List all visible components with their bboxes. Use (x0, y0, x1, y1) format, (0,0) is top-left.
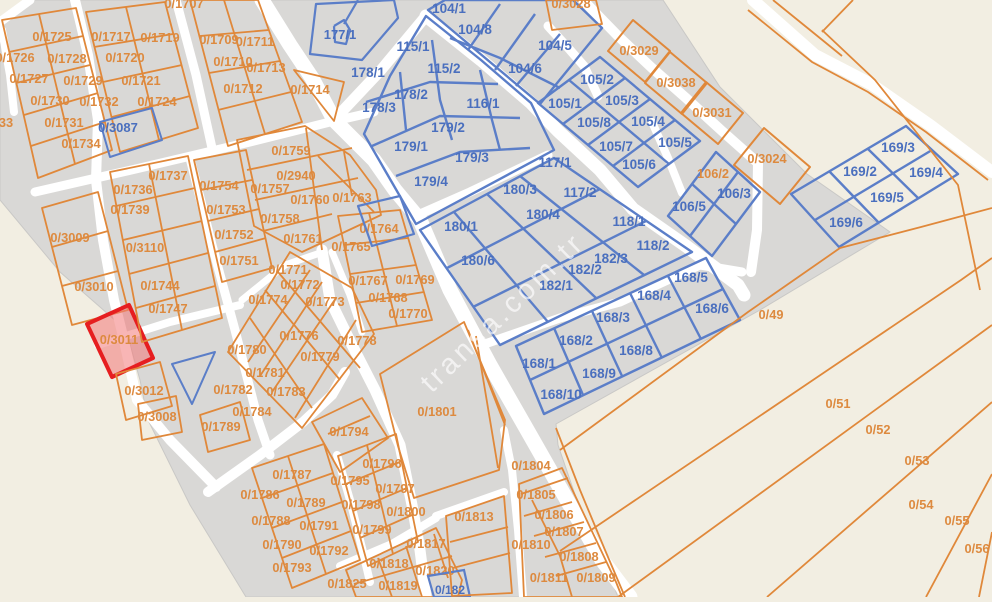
svg-text:0/1787: 0/1787 (272, 467, 311, 482)
svg-text:0/1754: 0/1754 (199, 178, 239, 193)
svg-text:0/1806: 0/1806 (534, 507, 573, 522)
svg-text:0/1813: 0/1813 (454, 509, 493, 524)
svg-text:169/6: 169/6 (829, 215, 863, 230)
svg-text:0/1791: 0/1791 (299, 518, 338, 533)
svg-text:177/1: 177/1 (324, 27, 357, 42)
svg-text:106/3: 106/3 (717, 186, 751, 201)
svg-text:168/3: 168/3 (596, 310, 630, 325)
svg-text:0/1719: 0/1719 (140, 30, 179, 45)
svg-text:0/1811: 0/1811 (530, 570, 568, 585)
svg-text:0/1761: 0/1761 (283, 231, 322, 246)
svg-text:0/1819: 0/1819 (378, 578, 417, 593)
svg-text:0/56: 0/56 (965, 541, 990, 556)
svg-text:0/3009: 0/3009 (50, 230, 89, 245)
svg-text:0/1765: 0/1765 (331, 239, 370, 254)
svg-text:0/1800: 0/1800 (386, 504, 425, 519)
svg-text:0/3087: 0/3087 (98, 120, 138, 135)
svg-text:33: 33 (0, 115, 13, 130)
svg-text:0/1767: 0/1767 (348, 273, 387, 288)
svg-text:0/1725: 0/1725 (32, 29, 71, 44)
svg-text:0/1728: 0/1728 (47, 51, 86, 66)
svg-text:0/53: 0/53 (905, 453, 930, 468)
svg-text:118/1: 118/1 (612, 214, 646, 229)
svg-text:180/3: 180/3 (503, 182, 537, 197)
svg-text:168/9: 168/9 (582, 366, 616, 381)
svg-text:0/1751: 0/1751 (219, 253, 258, 268)
svg-text:0/1789: 0/1789 (201, 419, 240, 434)
svg-text:0/3028: 0/3028 (551, 0, 590, 11)
svg-text:117/2: 117/2 (563, 185, 596, 200)
svg-text:169/4: 169/4 (909, 165, 943, 180)
svg-text:0/49: 0/49 (759, 307, 784, 322)
svg-text:0/1770: 0/1770 (388, 306, 427, 321)
svg-text:0/1804: 0/1804 (511, 458, 551, 473)
svg-text:0/1713: 0/1713 (246, 60, 285, 75)
svg-text:0/3029: 0/3029 (619, 43, 658, 58)
svg-text:0/1781: 0/1781 (245, 365, 284, 380)
svg-text:0/1801: 0/1801 (417, 404, 456, 419)
svg-text:117/1: 117/1 (538, 155, 572, 170)
svg-text:0/1792: 0/1792 (309, 543, 348, 558)
svg-text:0/1717: 0/1717 (91, 29, 130, 44)
svg-text:0/1732: 0/1732 (79, 94, 118, 109)
svg-text:0/1825: 0/1825 (327, 576, 366, 591)
svg-text:0/1714: 0/1714 (290, 82, 330, 97)
svg-text:0/1752: 0/1752 (214, 227, 253, 242)
svg-text:0/1727: 0/1727 (9, 71, 48, 86)
svg-text:0/1731: 0/1731 (44, 115, 83, 130)
svg-text:0/1794: 0/1794 (329, 424, 369, 439)
svg-text:0/1818: 0/1818 (369, 556, 408, 571)
svg-text:0/1779: 0/1779 (300, 349, 339, 364)
svg-text:118/2: 118/2 (636, 238, 669, 253)
svg-text:0/1730: 0/1730 (30, 93, 69, 108)
svg-text:169/2: 169/2 (843, 164, 877, 179)
svg-text:0/1809: 0/1809 (576, 570, 615, 585)
svg-text:168/10: 168/10 (540, 387, 581, 402)
svg-text:169/3: 169/3 (881, 140, 915, 155)
svg-text:178/2: 178/2 (394, 87, 428, 102)
svg-text:105/6: 105/6 (622, 157, 656, 172)
svg-text:168/6: 168/6 (695, 301, 729, 316)
svg-text:0/3008: 0/3008 (137, 409, 176, 424)
svg-text:0/1788: 0/1788 (251, 513, 290, 528)
svg-text:0/1744: 0/1744 (140, 278, 180, 293)
svg-text:0/1712: 0/1712 (223, 81, 262, 96)
svg-text:0/1805: 0/1805 (516, 487, 555, 502)
svg-text:0/1786: 0/1786 (240, 487, 279, 502)
svg-text:0/1795: 0/1795 (330, 473, 369, 488)
svg-text:0/1721: 0/1721 (121, 73, 160, 88)
svg-text:105/1: 105/1 (548, 96, 582, 111)
svg-text:179/4: 179/4 (414, 174, 448, 189)
svg-text:104/5: 104/5 (538, 38, 572, 53)
svg-text:168/8: 168/8 (619, 343, 653, 358)
svg-text:0/1709: 0/1709 (199, 32, 238, 47)
svg-text:168/1: 168/1 (522, 356, 556, 371)
svg-text:0/1726: 0/1726 (0, 50, 35, 65)
svg-text:104/6: 104/6 (508, 61, 542, 76)
svg-text:105/8: 105/8 (577, 115, 611, 130)
svg-text:0/1768: 0/1768 (368, 290, 407, 305)
svg-text:179/1: 179/1 (394, 139, 428, 154)
svg-text:0/3024: 0/3024 (747, 151, 787, 166)
svg-text:0/1753: 0/1753 (206, 202, 245, 217)
svg-text:104/8: 104/8 (458, 22, 492, 37)
svg-text:179/3: 179/3 (455, 150, 489, 165)
svg-text:0/3110: 0/3110 (126, 240, 164, 255)
svg-text:0/1771: 0/1771 (268, 262, 307, 277)
svg-text:0/1769: 0/1769 (395, 272, 434, 287)
svg-text:0/1817: 0/1817 (406, 536, 445, 551)
svg-text:0/1711: 0/1711 (236, 34, 274, 49)
svg-text:106/2: 106/2 (697, 166, 729, 181)
svg-text:179/2: 179/2 (431, 120, 465, 135)
svg-text:116/1: 116/1 (466, 96, 500, 111)
svg-text:0/1778: 0/1778 (337, 333, 376, 348)
svg-text:0/3010: 0/3010 (74, 279, 113, 294)
svg-text:180/4: 180/4 (526, 207, 560, 222)
svg-text:105/7: 105/7 (599, 139, 633, 154)
svg-text:0/1793: 0/1793 (272, 560, 311, 575)
svg-text:0/54: 0/54 (909, 497, 935, 512)
svg-text:105/2: 105/2 (580, 72, 614, 87)
svg-text:0/1763: 0/1763 (332, 190, 371, 205)
svg-text:0/1757: 0/1757 (250, 181, 289, 196)
svg-text:0/3038: 0/3038 (656, 75, 695, 90)
svg-text:168/2: 168/2 (559, 333, 593, 348)
svg-text:180/1: 180/1 (444, 219, 478, 234)
svg-text:0/1747: 0/1747 (148, 301, 187, 316)
svg-text:0/1782: 0/1782 (213, 382, 252, 397)
svg-text:0/3012: 0/3012 (124, 383, 163, 398)
svg-text:0/1760: 0/1760 (290, 192, 329, 207)
svg-text:0/1780: 0/1780 (227, 342, 266, 357)
svg-text:178/3: 178/3 (362, 100, 396, 115)
svg-text:0/1808: 0/1808 (559, 549, 598, 564)
svg-text:0/1783: 0/1783 (266, 384, 305, 399)
svg-text:0/1759: 0/1759 (271, 143, 310, 158)
svg-text:0/1739: 0/1739 (110, 202, 149, 217)
svg-text:0/1774: 0/1774 (248, 292, 288, 307)
svg-text:0/1772: 0/1772 (280, 277, 319, 292)
svg-text:105/5: 105/5 (658, 135, 692, 150)
svg-text:0/1734: 0/1734 (61, 136, 101, 151)
svg-text:180/6: 180/6 (461, 253, 495, 268)
svg-text:0/1758: 0/1758 (260, 211, 299, 226)
svg-text:0/1773: 0/1773 (305, 294, 344, 309)
svg-text:0/1798: 0/1798 (341, 497, 380, 512)
svg-text:0/52: 0/52 (866, 422, 891, 437)
svg-text:0/1784: 0/1784 (232, 404, 272, 419)
svg-text:104/1: 104/1 (432, 1, 466, 16)
svg-text:0/51: 0/51 (826, 396, 851, 411)
svg-text:0/1810: 0/1810 (511, 537, 550, 552)
svg-text:115/2: 115/2 (427, 61, 460, 76)
svg-text:168/5: 168/5 (674, 270, 708, 285)
svg-text:0/1796: 0/1796 (362, 456, 401, 471)
svg-text:169/5: 169/5 (870, 190, 904, 205)
svg-text:0/55: 0/55 (945, 513, 970, 528)
svg-text:0/1790: 0/1790 (262, 537, 301, 552)
svg-text:0/1799: 0/1799 (352, 522, 391, 537)
svg-text:105/3: 105/3 (605, 93, 639, 108)
svg-text:168/4: 168/4 (637, 288, 671, 303)
svg-text:0/1737: 0/1737 (148, 168, 187, 183)
svg-text:115/1: 115/1 (396, 39, 430, 54)
svg-text:0/1776: 0/1776 (279, 328, 318, 343)
svg-text:0/1724: 0/1724 (137, 94, 177, 109)
svg-text:0/1736: 0/1736 (113, 182, 152, 197)
svg-text:105/4: 105/4 (631, 114, 665, 129)
svg-text:0/1729: 0/1729 (63, 73, 102, 88)
svg-text:0/1707: 0/1707 (164, 0, 203, 11)
svg-text:0/3031: 0/3031 (692, 105, 731, 120)
svg-text:106/5: 106/5 (672, 199, 706, 214)
svg-text:0/1789: 0/1789 (286, 495, 325, 510)
svg-text:0/3011: 0/3011 (100, 332, 138, 347)
svg-text:0/1720: 0/1720 (105, 50, 144, 65)
svg-text:178/1: 178/1 (351, 65, 385, 80)
